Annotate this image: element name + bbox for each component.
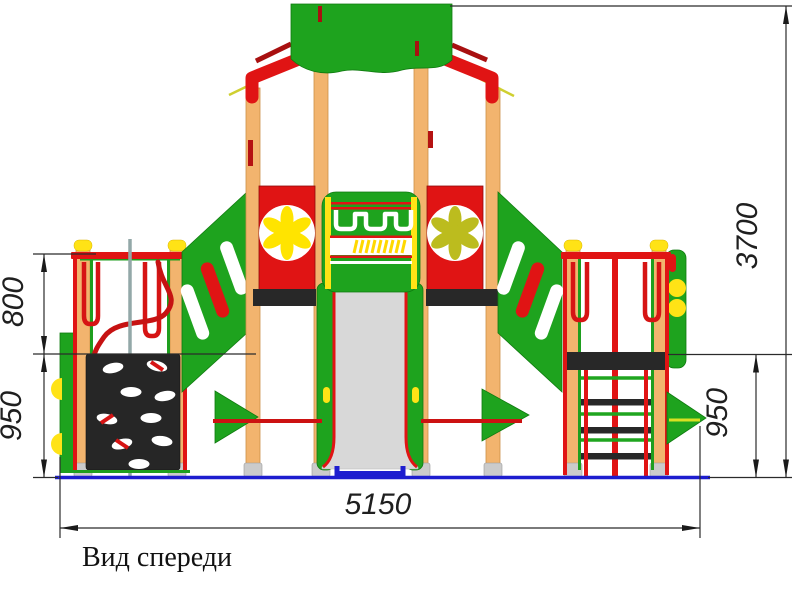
dim-label-3700: 3700	[731, 202, 764, 269]
post-cap	[74, 240, 92, 251]
panel-flower	[668, 299, 686, 317]
dim-label-950-left: 950	[0, 391, 28, 441]
platform-beam	[567, 352, 665, 370]
climbing-wall	[86, 354, 180, 470]
castle-panel	[322, 192, 420, 292]
banner-mark	[415, 41, 419, 56]
net-lines	[354, 240, 405, 253]
post-cap	[564, 240, 582, 251]
ladder-rail	[584, 370, 588, 476]
slide-side-wall	[406, 283, 423, 470]
view-caption: Вид спереди	[82, 542, 232, 573]
flower-panel-right	[427, 186, 483, 290]
slide	[322, 285, 418, 474]
playground-front-view-drawing: 800 950 3700 950 5150 Вид спереди	[0, 0, 800, 600]
red-frame-rail	[563, 253, 567, 475]
post-mark	[428, 131, 433, 148]
roof-banner	[291, 4, 452, 73]
banner-mark	[318, 6, 322, 22]
platform-beam	[253, 289, 316, 306]
wall-accent	[412, 387, 419, 403]
flower-panel-left	[259, 186, 315, 290]
ladder-rung	[581, 399, 651, 406]
dim-label-5150: 5150	[345, 488, 412, 521]
dim-label-950-right: 950	[701, 388, 734, 438]
panel-flower	[668, 279, 686, 297]
base-rail	[60, 470, 190, 473]
post-mark	[248, 140, 253, 166]
post-cap	[650, 240, 668, 251]
post-cap	[168, 240, 186, 251]
post-foot	[484, 463, 502, 477]
red-frame-rail	[73, 253, 77, 471]
ladder-rung	[581, 453, 651, 460]
wall-accent	[323, 387, 330, 403]
slide-side-wall	[317, 283, 334, 470]
dim-label-800: 800	[0, 277, 30, 327]
drawing-svg: 800 950 3700 950 5150 Вид спереди	[0, 0, 800, 600]
post-foot	[244, 463, 262, 477]
platform-beam	[426, 289, 500, 306]
ladder-rail	[644, 370, 648, 476]
ladder-rung	[581, 427, 651, 434]
